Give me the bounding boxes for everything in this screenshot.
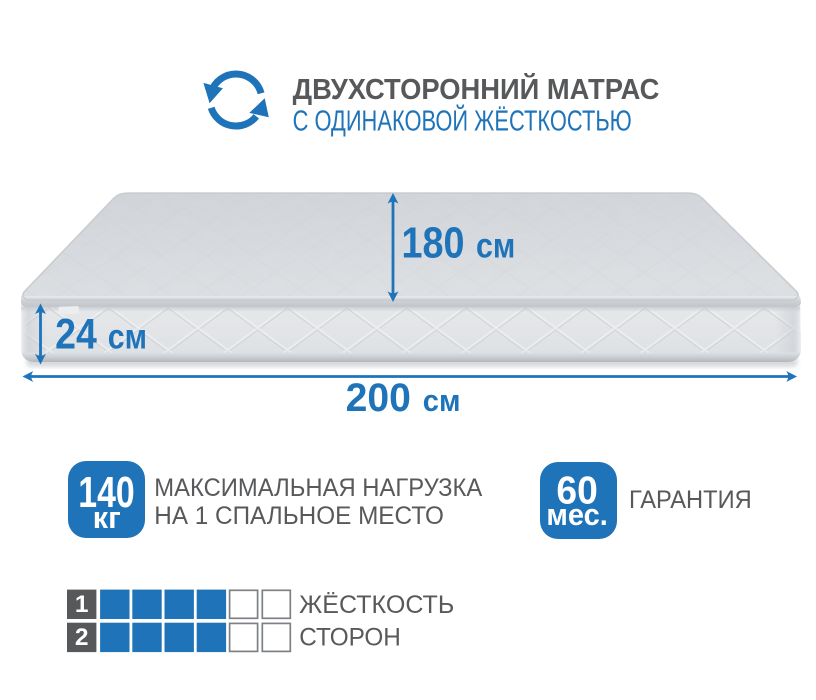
svg-text:СТОРОН: СТОРОН [299, 624, 401, 652]
svg-text:см: см [108, 316, 147, 356]
svg-text:С ОДИНАКОВОЙ ЖЁСТКОСТЬЮ: С ОДИНАКОВОЙ ЖЁСТКОСТЬЮ [293, 104, 632, 136]
svg-text:см: см [423, 384, 461, 418]
svg-text:кг: кг [93, 500, 121, 535]
svg-text:ЖЁСТКОСТЬ: ЖЁСТКОСТЬ [299, 591, 454, 619]
svg-text:см: см [476, 225, 515, 265]
svg-text:ДВУХСТОРОННИЙ МАТРАС: ДВУХСТОРОННИЙ МАТРАС [293, 72, 660, 106]
svg-text:МАКСИМАЛЬНАЯ НАГРУЗКА: МАКСИМАЛЬНАЯ НАГРУЗКА [154, 474, 482, 502]
svg-text:мес.: мес. [546, 499, 607, 532]
svg-text:180: 180 [402, 219, 465, 267]
svg-text:24: 24 [55, 310, 97, 357]
svg-text:2: 2 [75, 624, 89, 651]
svg-text:ГАРАНТИЯ: ГАРАНТИЯ [629, 487, 752, 514]
svg-text:НА 1 СПАЛЬНОЕ МЕСТО: НА 1 СПАЛЬНОЕ МЕСТО [154, 502, 444, 530]
svg-text:1: 1 [75, 591, 89, 618]
svg-text:200: 200 [346, 376, 411, 420]
